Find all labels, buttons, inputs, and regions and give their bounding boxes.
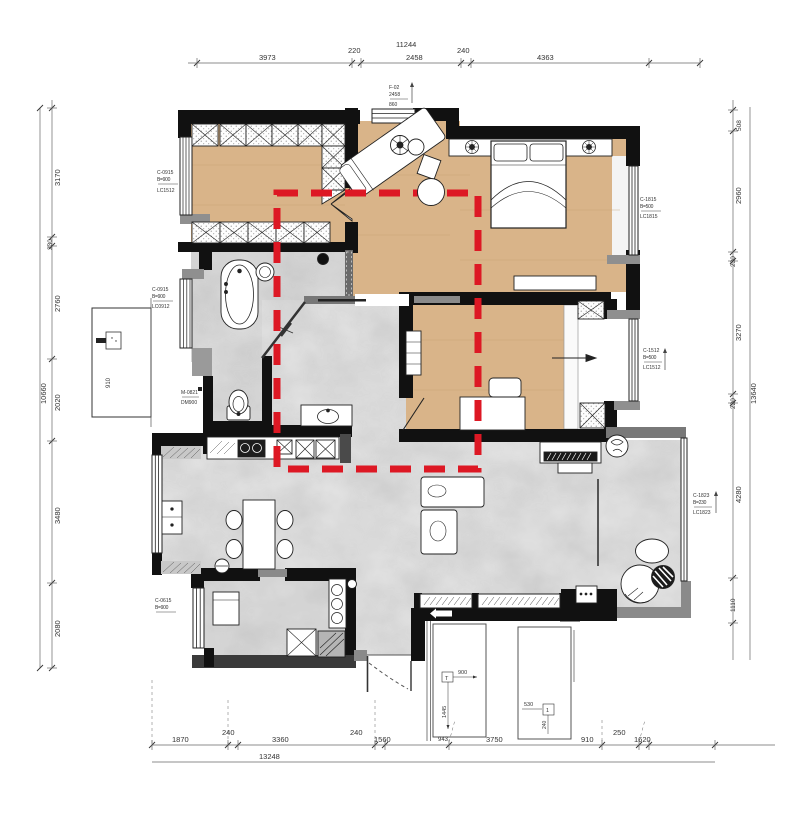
svg-text:LC1512: LC1512 <box>157 188 175 194</box>
svg-text:1870: 1870 <box>172 735 189 744</box>
svg-text:2080: 2080 <box>53 620 62 637</box>
svg-text:1620: 1620 <box>634 735 651 744</box>
svg-text:1: 1 <box>546 708 549 714</box>
svg-text:DM900: DM900 <box>181 400 197 406</box>
svg-text:250: 250 <box>613 728 626 737</box>
svg-text:900: 900 <box>458 670 467 676</box>
svg-text:C-1823: C-1823 <box>693 493 710 499</box>
svg-text:LC1823: LC1823 <box>693 510 711 516</box>
svg-text:508: 508 <box>736 120 743 131</box>
svg-text:240: 240 <box>222 728 235 737</box>
svg-text:C-1512: C-1512 <box>643 348 660 354</box>
svg-text:910: 910 <box>581 735 594 744</box>
svg-text:220: 220 <box>348 46 361 55</box>
svg-text:B=500: B=500 <box>640 204 654 210</box>
svg-text:240: 240 <box>457 46 470 55</box>
svg-text:1110: 1110 <box>730 598 737 612</box>
svg-text:2760: 2760 <box>53 295 62 312</box>
svg-text:C-0615: C-0615 <box>155 598 172 604</box>
svg-text:3270: 3270 <box>734 324 743 341</box>
svg-text:240: 240 <box>350 728 363 737</box>
svg-text:910: 910 <box>106 377 112 388</box>
svg-text:C-0915: C-0915 <box>157 170 174 176</box>
svg-text:4280: 4280 <box>734 486 743 503</box>
svg-text:3170: 3170 <box>53 169 62 186</box>
svg-text:11244: 11244 <box>396 40 416 49</box>
svg-text:4363: 4363 <box>537 53 554 62</box>
svg-text:230: 230 <box>730 256 737 267</box>
svg-text:B=500: B=500 <box>643 355 657 361</box>
svg-text:2458: 2458 <box>406 53 423 62</box>
svg-text:2020: 2020 <box>53 394 62 411</box>
svg-text:3750: 3750 <box>486 735 503 744</box>
svg-text:C-1815: C-1815 <box>640 197 657 203</box>
svg-text:1445: 1445 <box>442 706 448 718</box>
svg-text:860: 860 <box>389 102 398 108</box>
svg-text:M-0821: M-0821 <box>181 390 198 396</box>
svg-text:10660: 10660 <box>39 383 48 404</box>
svg-text:LC1815: LC1815 <box>640 214 658 220</box>
svg-text:B=230: B=230 <box>693 500 707 506</box>
svg-text:C-0915: C-0915 <box>152 287 169 293</box>
svg-text:3973: 3973 <box>259 53 276 62</box>
svg-text:LC0912: LC0912 <box>152 304 170 310</box>
svg-text:13248: 13248 <box>259 752 280 761</box>
svg-text:F-02: F-02 <box>389 85 400 91</box>
svg-text:220: 220 <box>730 398 737 409</box>
svg-text:13640: 13640 <box>749 383 758 404</box>
svg-text:B=900: B=900 <box>157 177 171 183</box>
svg-text:943: 943 <box>438 737 449 743</box>
svg-text:2960: 2960 <box>734 187 743 204</box>
svg-text:LC1512: LC1512 <box>643 365 661 371</box>
svg-text:2458: 2458 <box>389 92 400 98</box>
svg-text:B=900: B=900 <box>152 294 166 300</box>
svg-text:3480: 3480 <box>53 507 62 524</box>
svg-text:230: 230 <box>47 239 54 250</box>
svg-text:3360: 3360 <box>272 735 289 744</box>
svg-text:530: 530 <box>524 702 533 708</box>
svg-text:240: 240 <box>542 720 548 729</box>
svg-text:1560: 1560 <box>374 735 391 744</box>
svg-text:B=900: B=900 <box>155 605 169 611</box>
